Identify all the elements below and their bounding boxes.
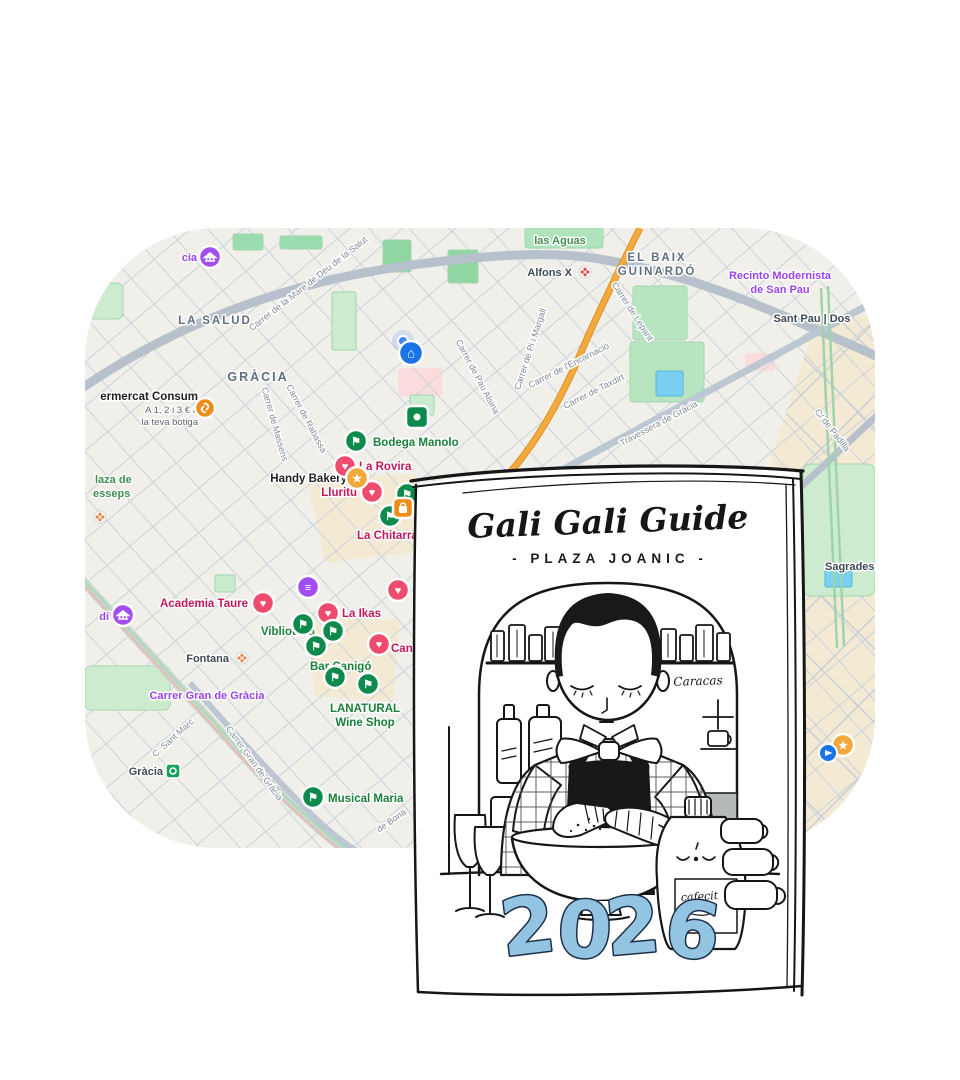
flag-icon: ⚑ [330, 672, 340, 684]
fgc-station-icon[interactable] [166, 764, 180, 778]
heart-icon: ♥ [376, 639, 383, 651]
heart-icon: ♥ [325, 608, 332, 620]
poster-subtitle: - PLAZA JOANIC - [512, 551, 708, 566]
dot-icon [414, 414, 421, 421]
illustrated-poster: Gali Gali Guide - PLAZA JOANIC - [403, 455, 815, 1013]
machine-brand: Caracas [673, 673, 723, 689]
star-icon: ★ [838, 740, 848, 752]
green-square-marker[interactable] [406, 406, 428, 428]
flag-marker[interactable]: ⚑ [292, 613, 314, 635]
book-icon: ≡ [305, 582, 311, 594]
attraction-label: de San Pau [750, 284, 809, 296]
page: Carrer de la Mare de Déu de la Salut Car… [0, 0, 960, 1080]
station-label: Sant Pau | Dos [773, 313, 850, 325]
bow-tie [557, 739, 662, 764]
street-label-purple: Carrer Gran de Gràcia [150, 690, 266, 702]
home-icon: ⌂ [407, 346, 415, 361]
metro-icon[interactable] [579, 266, 591, 278]
neighborhood-label: GUINARDÓ [618, 265, 697, 278]
heart-marker[interactable]: ♥ [252, 592, 274, 614]
flag-marker[interactable]: ⚑ [324, 666, 346, 688]
year-digit: 2 [495, 879, 560, 975]
poi-label-pink: Academia Taure [160, 598, 248, 610]
neighborhood-label: LA SALUD [178, 315, 252, 327]
poi-label-green: Musical Maria [328, 793, 404, 805]
station-label: Gràcia [129, 766, 164, 778]
ad-title: ermercat Consum [100, 391, 198, 403]
star-marker[interactable]: ★ [346, 467, 368, 489]
flag-icon: ⚑ [351, 436, 361, 448]
poi-label-green: Bodega Manolo [373, 437, 459, 449]
bookstore-marker[interactable]: ≡ [297, 576, 319, 598]
heart-icon: ♥ [369, 487, 376, 499]
attraction-label-fragment: dí [99, 611, 110, 623]
ad-subtitle: A 1, 2 i 3 € a [145, 405, 199, 416]
star-icon: ★ [352, 473, 362, 485]
metro-icon[interactable] [236, 652, 248, 664]
year-digit: 2 [602, 880, 664, 974]
attraction-label-fragment: cia [182, 252, 198, 264]
station-label: Alfons X [527, 267, 572, 279]
flag-icon: ⚑ [311, 641, 321, 653]
park-label: las Aguas [534, 235, 586, 247]
poi-label-green: Wine Shop [335, 717, 394, 729]
flag-marker[interactable]: ⚑ [345, 430, 367, 452]
flag-icon: ⚑ [298, 619, 308, 631]
attraction-label: Recinto Modernista [729, 270, 832, 282]
museum-marker[interactable] [199, 246, 221, 268]
poster-svg: Gali Gali Guide - PLAZA JOANIC - [403, 455, 815, 1013]
flag-icon: ⚑ [308, 792, 318, 804]
poi-label-pink: La Ikas [342, 608, 381, 620]
ad-marker[interactable] [195, 398, 215, 418]
flag-marker[interactable]: ⚑ [357, 673, 379, 695]
heart-icon: ♥ [260, 598, 267, 610]
transit-marker[interactable] [819, 744, 837, 762]
flag-icon: ⚑ [328, 626, 338, 638]
pool-water [656, 371, 683, 396]
neighborhood-label: GRÀCIA [227, 369, 288, 384]
park-label: laza de [95, 474, 132, 486]
poi-label-dark: Handy Bakery [270, 473, 347, 485]
station-label: Sagrades [825, 561, 875, 573]
home-marker[interactable]: ⌂ [399, 341, 423, 365]
neighborhood-label: EL BAIX [627, 252, 686, 264]
flag-icon: ⚑ [363, 679, 373, 691]
museum-marker[interactable] [112, 604, 134, 626]
park-label: esseps [93, 488, 130, 500]
metro-icon[interactable] [94, 511, 106, 523]
year-2026: 2 0 2 6 [495, 879, 725, 979]
flag-marker[interactable]: ⚑ [305, 635, 327, 657]
flag-marker[interactable]: ⚑ [302, 786, 324, 808]
station-label: Fontana [186, 653, 230, 665]
ad-subtitle: la teva botiga [141, 417, 198, 428]
heart-icon: ♥ [395, 585, 402, 597]
heart-marker[interactable]: ♥ [368, 633, 390, 655]
poi-label-green: LANATURAL [330, 703, 400, 715]
